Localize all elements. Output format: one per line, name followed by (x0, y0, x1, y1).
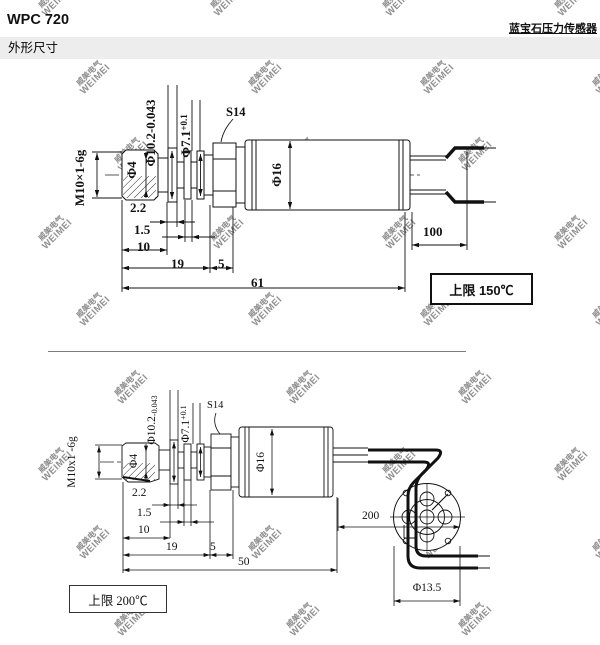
section-title: 外形尺寸 (8, 37, 58, 59)
drawing-divider (48, 351, 466, 352)
page-title: WPC 720 (7, 12, 69, 28)
thread-spec-label: M10x1 -6g (66, 436, 78, 487)
dim-10: 10 (137, 239, 150, 255)
phi10-2-label: Φ10.2-0.043 (143, 99, 159, 166)
dim-19: 19 (171, 256, 184, 272)
dim-wire-200: 200 (362, 510, 379, 522)
hex-s14-label: S14 (207, 400, 223, 411)
sensor-body-outline (122, 140, 410, 210)
dim-5: 5 (210, 541, 216, 553)
dim-wire-100: 100 (423, 224, 443, 240)
dim-19: 19 (166, 541, 178, 553)
section-header-band: 外形尺寸 (0, 37, 600, 59)
phi7-1-label: Φ7.1+0.1 (180, 405, 192, 442)
dim-2-2: 2.2 (130, 200, 146, 216)
connector (390, 483, 465, 551)
dim-2-2: 2.2 (132, 487, 146, 499)
phi16-label: Φ16 (255, 452, 267, 472)
dim-1-5: 1.5 (137, 507, 151, 519)
phi4-label: Φ4 (124, 161, 140, 178)
datasheet-page: 威美电气WEIMEI威美电气WEIMEI威美电气WEIMEI威美电气WEIMEI… (0, 0, 600, 645)
phi10-2-label: Φ10.2-0.043 (146, 395, 158, 444)
watermark-logo: 威美电气WEIMEI (201, 0, 252, 25)
dim-10: 10 (138, 524, 150, 536)
temp-limit-box-150: 上限 150℃ (430, 273, 533, 305)
thread-spec-label: M10×1-6g (72, 150, 88, 207)
temp-limit-box-200: 上限 200℃ (69, 585, 167, 613)
dim-5: 5 (218, 256, 225, 272)
dim-50: 50 (238, 556, 250, 568)
dim-61: 61 (251, 275, 264, 291)
hex-s14-label: S14 (226, 105, 245, 120)
wires (410, 148, 496, 202)
phi4-label: Φ4 (128, 454, 140, 468)
connector-dia-label: Φ13.5 (397, 582, 457, 594)
drawing1-linework (0, 70, 600, 370)
phi7-1-label: Φ7.1+0.1 (178, 114, 194, 157)
product-name: 蓝宝石压力传感器 (509, 20, 597, 36)
dim-1-5: 1.5 (134, 222, 150, 238)
watermark-logo: 威美电气WEIMEI (373, 0, 424, 25)
phi16-label: Φ16 (269, 163, 285, 187)
